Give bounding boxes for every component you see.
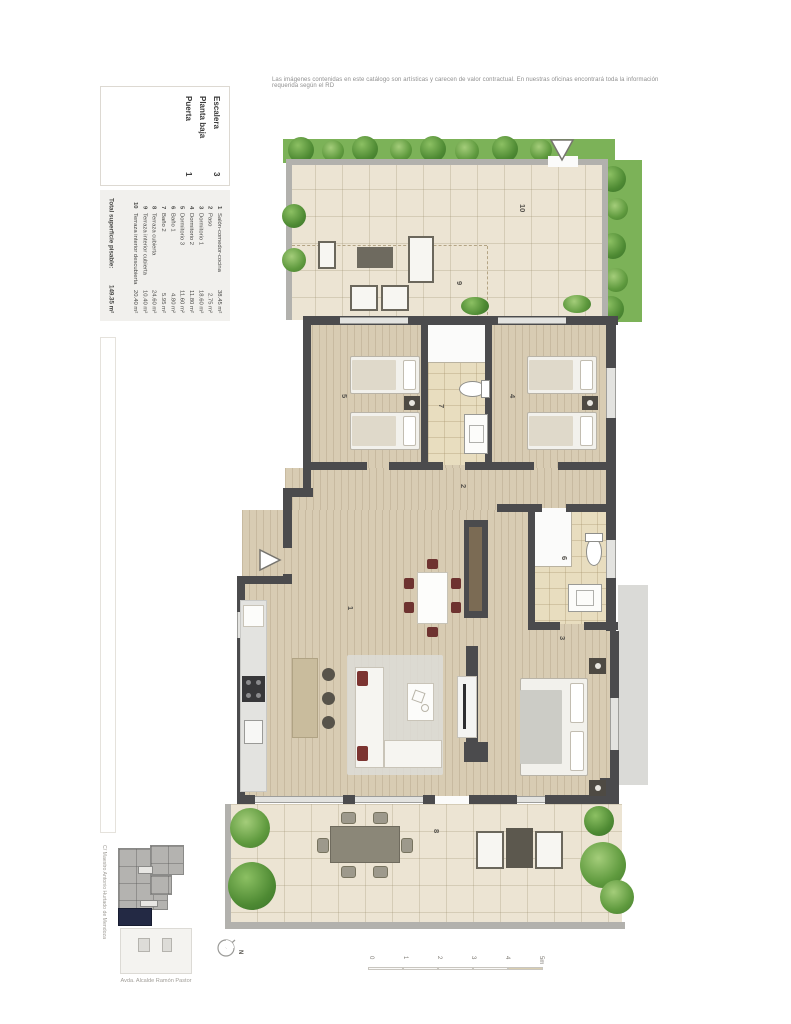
room-number-terraza-descubierta: 10 [518, 204, 527, 212]
bed-pillow [403, 360, 416, 390]
street-name-bottom: Avda. Alcalde Ramón Pastor [110, 978, 202, 984]
wardrobe [469, 527, 482, 611]
scale-tick: 3 [470, 956, 476, 964]
legend-item: 10Terraza interior descubierta20.40 m² [130, 198, 139, 313]
terrace-wall [225, 922, 625, 929]
planta-label: Planta baja [198, 96, 207, 138]
cooktop [242, 676, 265, 702]
legend-total: Total superficie pisable: 149.35 m² [108, 198, 115, 313]
wall [421, 322, 428, 462]
unit-info-box: Escalera 3 Planta baja Puerta 1 [100, 86, 230, 186]
wall [528, 508, 535, 626]
coffee-table [407, 683, 434, 721]
stool [322, 692, 335, 705]
wall [423, 795, 435, 804]
legend-area: 4.80 m² [167, 293, 176, 313]
legend-item: 2Paso2.75 m² [204, 198, 213, 313]
lounge-chair [535, 831, 563, 869]
scale-tick: 2 [436, 956, 442, 964]
building-footprint [150, 875, 172, 895]
legend-num: 1 [214, 198, 223, 209]
tv [463, 684, 466, 729]
legend-item: 9Terraza interior cubierta10.40 m² [139, 198, 148, 313]
wall [421, 462, 443, 470]
burner [256, 693, 261, 698]
sofa-cushion [357, 746, 368, 761]
outdoor-chair [401, 838, 413, 853]
room-number-terraza-int-cubierta: 9 [455, 281, 464, 285]
legend-item: 1Salón-comedor-cocina38.45 m² [214, 198, 223, 313]
room-number-dormitorio2: 4 [508, 394, 517, 398]
outdoor-side-table [506, 828, 533, 868]
legend-area: 10.40 m² [139, 290, 148, 313]
bed-pillow [570, 683, 584, 723]
scale-tick: 0 [368, 956, 374, 964]
wall [237, 795, 255, 804]
plot-structure [138, 938, 150, 952]
disclaimer-text: Las imágenes contenidas en este catálogo… [272, 77, 672, 89]
north-label: N [237, 950, 243, 954]
unit-info-row: Puerta 1 [184, 96, 193, 176]
legend-item: 5Dormitorio 311.60 m² [176, 198, 185, 313]
dining-chair [427, 559, 438, 569]
legend-name: Dormitorio 1 [195, 213, 204, 290]
scale-segment [508, 967, 543, 970]
legend-area: 11.60 m² [176, 290, 185, 313]
unit-info-row: Planta baja [198, 96, 207, 176]
side-frame [100, 337, 116, 833]
room-number-bano2: 7 [437, 404, 446, 408]
legend-num: 5 [176, 198, 185, 209]
plant [606, 198, 628, 220]
wall [545, 795, 605, 804]
stool [322, 716, 335, 729]
room-number-dormitorio1: 3 [558, 636, 567, 640]
plant [461, 297, 489, 315]
total-label: Total superficie pisable: [108, 198, 115, 268]
terrace-door [435, 796, 469, 804]
wall [343, 795, 355, 804]
wall [305, 462, 367, 470]
plant [584, 806, 614, 836]
window [255, 796, 343, 803]
window [606, 540, 616, 578]
escalera-label: Escalera [212, 96, 221, 129]
outdoor-chair [373, 866, 388, 878]
bed-pillow [570, 731, 584, 771]
scale-segment [473, 967, 508, 970]
legend-item: 6Baño 14.80 m² [167, 198, 176, 313]
scale-segment [403, 967, 438, 970]
legend-num: 4 [186, 198, 195, 209]
nightstand [589, 780, 606, 796]
kitchen-sink [244, 720, 263, 744]
room-number-terraza-cubierta: 8 [432, 829, 441, 833]
bed-pillow [580, 416, 593, 446]
window [610, 698, 619, 750]
toilet [586, 538, 602, 566]
legend-num: 6 [167, 198, 176, 209]
terrace-chair [350, 285, 378, 311]
room-number-bano1: 6 [560, 556, 569, 560]
table-decor [411, 689, 425, 703]
stool [322, 668, 335, 681]
bath2-counter [428, 325, 485, 363]
scale-tick: 4 [504, 956, 510, 964]
plant [563, 295, 591, 313]
bed-pillow [580, 360, 593, 390]
outdoor-chair [373, 812, 388, 824]
plant [600, 880, 634, 914]
legend-num: 9 [139, 198, 148, 209]
room-legend: 1Salón-comedor-cocina38.45 m² 2Paso2.75 … [100, 190, 230, 321]
plant [282, 248, 306, 272]
terrace-sofa [408, 236, 434, 283]
lounge-chair [476, 831, 504, 869]
legend-item: 8Terraza cubierta24.60 m² [148, 198, 157, 313]
sofa-chaise [384, 740, 442, 768]
street-name-left: C/ Maestro Antonio Hurtado de Mendoza [101, 845, 107, 970]
wall [465, 462, 493, 470]
bath-vanity [568, 584, 602, 612]
wall [469, 795, 517, 804]
terrace-door [517, 796, 545, 803]
legend-num: 3 [195, 198, 204, 209]
sofa-cushion [357, 671, 368, 686]
scale-segment [438, 967, 473, 970]
unit-info-row: Escalera 3 [212, 96, 221, 176]
dining-chair [427, 627, 438, 637]
wall [240, 576, 292, 584]
outdoor-chair [317, 838, 329, 853]
terrace-chair [381, 285, 409, 311]
entry-arrow-icon [258, 548, 282, 572]
window [340, 317, 408, 324]
wall [389, 462, 423, 470]
legend-area: 24.60 m² [148, 290, 157, 313]
dining-chair [451, 578, 461, 589]
plot-structure [162, 938, 172, 952]
legend-num: 7 [158, 198, 167, 209]
bath-vanity [464, 414, 488, 454]
building-footprint [150, 845, 184, 875]
bed-duvet [529, 416, 573, 446]
burner [256, 680, 261, 685]
window [498, 317, 566, 324]
north-arrow-icon [215, 936, 241, 960]
lamp [595, 785, 601, 791]
puerta-label: Puerta [184, 96, 193, 121]
legend-name: Terraza interior descubierta [130, 213, 139, 290]
burner [246, 680, 251, 685]
scale-ticks: 0 1 2 3 4 5m [368, 956, 544, 964]
outdoor-table [330, 826, 400, 863]
legend-name: Salón-comedor-cocina [214, 213, 223, 290]
legend-num: 2 [204, 198, 213, 209]
table-decor [421, 704, 429, 712]
terrace-armchair [318, 241, 336, 269]
plant [282, 204, 306, 228]
window [355, 796, 423, 803]
plant [390, 139, 412, 161]
scale-bar-line [368, 967, 544, 970]
scale-bar: 0 1 2 3 4 5m [368, 956, 544, 970]
window [606, 368, 616, 418]
legend-name: Baño 2 [158, 213, 167, 293]
wall [584, 622, 618, 630]
highlighted-unit [118, 908, 152, 926]
room-number-dormitorio3: 5 [340, 394, 349, 398]
terrace-wall [286, 159, 292, 320]
kitchen-island [292, 658, 318, 738]
bed-duvet [520, 690, 562, 764]
legend-area: 2.75 m² [204, 293, 213, 313]
total-value: 149.35 m² [108, 285, 115, 313]
legend-area: 11.80 m² [186, 290, 195, 313]
entry-arrow-icon [549, 138, 575, 162]
basin [469, 425, 484, 443]
legend-item: 4Dormitorio 211.80 m² [186, 198, 195, 313]
room-number-salon: 1 [346, 606, 355, 610]
dining-chair [451, 602, 461, 613]
legend-name: Dormitorio 3 [176, 213, 185, 290]
side-strip [618, 585, 648, 785]
plot-outline [120, 928, 192, 974]
room-number-paso: 2 [459, 484, 468, 488]
legend-num: 10 [130, 198, 139, 209]
legend-item: 7Baño 25.95 m² [158, 198, 167, 313]
scale-tick: 5m [538, 956, 544, 964]
plant [228, 862, 276, 910]
stair-core [138, 866, 153, 874]
outdoor-chair [341, 812, 356, 824]
wall [558, 462, 616, 470]
legend-name: Paso [204, 213, 213, 293]
wall [566, 504, 616, 512]
legend-item: 3Dormitorio 118.60 m² [195, 198, 204, 313]
lamp [595, 663, 601, 669]
lamp [409, 400, 415, 406]
wall [283, 488, 292, 548]
dining-chair [404, 602, 414, 613]
nightstand [582, 396, 598, 410]
wall [528, 622, 560, 630]
bed-duvet [529, 360, 573, 390]
legend-name: Baño 1 [167, 213, 176, 293]
bed-duvet [352, 416, 396, 446]
compass: N [215, 936, 241, 965]
terrace-8-floor [230, 804, 622, 924]
scale-segment [368, 967, 403, 970]
wall [492, 462, 534, 470]
legend-area: 18.60 m² [195, 290, 204, 313]
terrace-wall [602, 159, 608, 320]
nightstand [404, 396, 420, 410]
stair-core [140, 900, 158, 907]
bed-duvet [352, 360, 396, 390]
dining-table [417, 572, 448, 624]
plant [230, 808, 270, 848]
puerta-value: 1 [184, 172, 193, 176]
legend-name: Terraza cubierta [148, 213, 157, 290]
basin [576, 590, 594, 606]
legend-num: 8 [148, 198, 157, 209]
terrace-coffee-table [357, 247, 393, 268]
legend-area: 5.95 m² [158, 293, 167, 313]
legend-area: 20.40 m² [130, 290, 139, 313]
legend-area: 38.45 m² [214, 290, 223, 313]
legend-name: Dormitorio 2 [186, 213, 195, 290]
tv-unit [457, 676, 477, 738]
toilet-tank [585, 533, 603, 542]
legend-name: Terraza interior cubierta [139, 213, 148, 290]
lamp [587, 400, 593, 406]
dining-chair [404, 578, 414, 589]
burner [246, 693, 251, 698]
scale-tick: 1 [402, 956, 408, 964]
outdoor-chair [341, 866, 356, 878]
wall [497, 504, 542, 512]
wall [464, 742, 488, 762]
brochure-page: Las imágenes contenidas en este catálogo… [0, 0, 791, 1024]
toilet-tank [481, 380, 490, 398]
hall-floor [285, 468, 612, 512]
bed-pillow [403, 416, 416, 446]
nightstand [589, 658, 606, 674]
escalera-value: 3 [212, 172, 221, 176]
kitchen-appliance [243, 605, 264, 627]
